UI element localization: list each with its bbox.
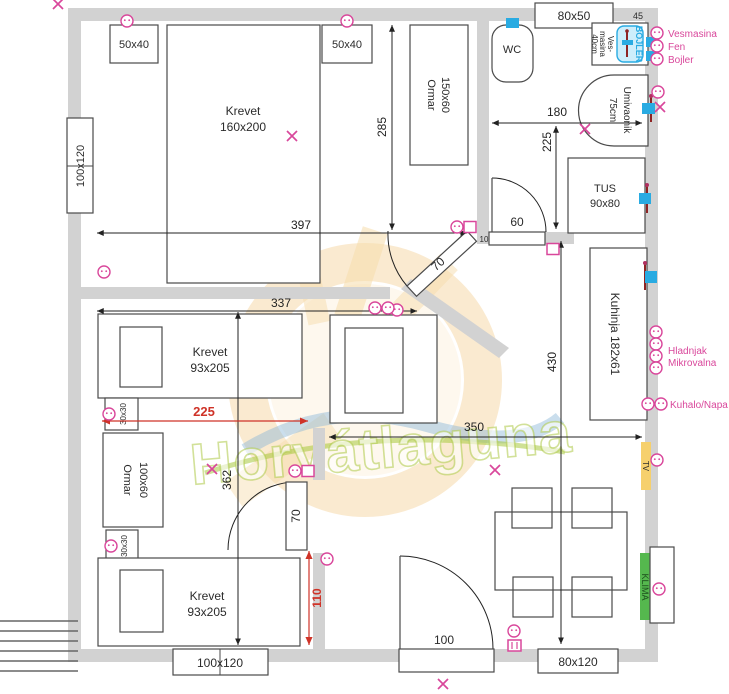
nightstand-30-b-label: 30x30 [120, 535, 129, 557]
label-vesmasina: Vesmasina [668, 29, 717, 40]
bed-93-b-label1: Krevet [190, 589, 225, 603]
boiler-label: BOJLER [634, 26, 644, 63]
nightstand-b-label: 50x40 [332, 39, 362, 51]
wardrobe-100-label1: Ormar [121, 464, 133, 496]
power-outlet-icon [289, 465, 301, 477]
wardrobe-150 [410, 25, 468, 165]
bedroom-top: 50x40 Krevet 160x200 50x40 Ormar 150x60 [110, 25, 468, 283]
toilet-flush [506, 18, 519, 28]
bed-93-b-pillow [120, 570, 163, 632]
light-switch-icon [547, 244, 559, 255]
power-outlet-icon [98, 266, 110, 278]
label-hladnjak: Hladnjak [668, 346, 708, 357]
window-bottom-left-label: 100x120 [197, 656, 243, 670]
wardrobe-150-label2: 150x60 [439, 77, 451, 113]
power-outlet-icon [105, 540, 117, 552]
dim-397: 397 [291, 218, 311, 232]
power-outlet-icon [651, 53, 663, 65]
power-outlet-icon [642, 398, 654, 410]
shower [568, 158, 645, 233]
power-outlet-icon [652, 86, 664, 98]
bed-93-a-label2: 93x205 [190, 361, 230, 375]
dim-225-red: 225 [193, 404, 215, 419]
power-outlet-icon [650, 326, 662, 338]
window-bottom-left: 100x120 [173, 649, 268, 675]
kitchen: Kuhinja 182x61 [590, 248, 657, 420]
dim-337: 337 [271, 296, 291, 310]
wardrobe-100-label2: 100x60 [137, 462, 149, 498]
door-bathroom: 60 [489, 178, 546, 245]
power-outlet-icon [650, 362, 662, 374]
power-outlet-icon [321, 553, 333, 565]
bed-160 [167, 25, 320, 283]
window-left: 100x120 [67, 118, 93, 213]
dim-10: 10 [480, 235, 489, 244]
washer-label3: 40cm [590, 34, 599, 54]
label-fen: Fen [668, 42, 685, 53]
bed-93-b-label2: 93x205 [187, 605, 227, 619]
kitchen-label: Kuhinja 182x61 [608, 293, 622, 376]
crib-inner [345, 328, 403, 413]
wall-bathroom-left [477, 8, 489, 244]
door-entry-label: 100 [434, 633, 454, 647]
power-outlet-icon [103, 408, 115, 420]
window-top-label: 80x50 [558, 9, 591, 23]
power-outlet-icon [651, 40, 663, 52]
window-left-label: 100x120 [75, 145, 87, 187]
bed-160-label1: Krevet [226, 104, 261, 118]
stairs [0, 621, 78, 671]
power-outlet-icon [650, 338, 662, 350]
power-outlet-icon [650, 350, 662, 362]
nightstand-a-label: 50x40 [119, 39, 149, 51]
power-outlet-icon [653, 583, 665, 595]
dim-45: 45 [633, 11, 643, 21]
klima-label: KLIMA [640, 573, 650, 600]
dim-350: 350 [464, 420, 484, 434]
shower-label2: 90x80 [590, 198, 620, 210]
window-bottom-right-label: 80x120 [558, 655, 598, 669]
power-outlet-icon [451, 221, 463, 233]
shower-label1: TUS [594, 183, 616, 195]
bathroom: WC Ves- masina 40cm BOJLER Umivaonik 75c… [492, 18, 657, 233]
power-outlet-icon [369, 302, 381, 314]
light-switch-icon [464, 222, 476, 233]
power-outlet-icon [341, 15, 353, 27]
power-outlet-icon [651, 27, 663, 39]
bed-93-a-pillow [120, 327, 162, 387]
bed-93-a-label1: Krevet [193, 345, 228, 359]
power-outlet-icon [382, 302, 394, 314]
sink-label1: Umivaonik [621, 87, 632, 135]
wall-room2-upper [313, 428, 325, 480]
wall-bedroom-divider [80, 287, 390, 299]
door-bathroom-label: 60 [510, 215, 524, 229]
door-entry: 100 [399, 556, 494, 672]
sink-label2: 75cm [607, 98, 618, 122]
dim-362: 362 [220, 470, 234, 490]
doorbell-icon [508, 625, 521, 651]
bed-160-label2: 160x200 [220, 120, 266, 134]
x-mark-icon [438, 679, 448, 689]
dim-225-bath: 225 [540, 132, 554, 152]
label-bojler: Bojler [668, 55, 694, 66]
door-lower-bedroom-label: 70 [289, 509, 303, 523]
wall-bathroom-bottom [545, 232, 574, 244]
wall-left [68, 8, 81, 662]
floor-plan: Horvátlaguna 80x50 100x120 100x120 80x12… [0, 0, 729, 694]
dim-285: 285 [375, 117, 389, 137]
wardrobe-150-label1: Ormar [425, 79, 437, 111]
dim-180: 180 [547, 105, 567, 119]
power-outlet-icon [655, 398, 667, 410]
annotation-labels: Vesmasina Fen Bojler Hladnjak Mikrovalna… [668, 29, 728, 411]
window-bottom-right: 80x120 [538, 649, 618, 673]
floor-plan-drawing: Horvátlaguna 80x50 100x120 100x120 80x12… [0, 0, 729, 694]
x-mark-icon [53, 0, 63, 9]
tv-label: TV [641, 461, 650, 472]
light-switch-icon [302, 466, 314, 477]
label-kuhalo-napa: Kuhalo/Napa [670, 400, 728, 411]
dim-110-red: 110 [310, 588, 324, 608]
toilet-label: WC [503, 44, 521, 56]
label-mikrovalna: Mikrovalna [668, 358, 717, 369]
power-outlet-icon [121, 15, 133, 27]
power-outlet-icon [651, 454, 663, 466]
dim-430: 430 [545, 352, 559, 372]
